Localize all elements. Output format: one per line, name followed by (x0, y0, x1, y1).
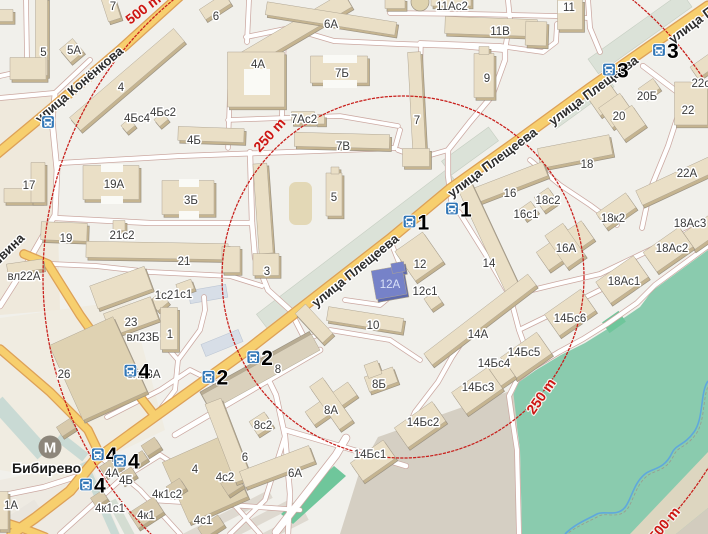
svg-text:6А: 6А (324, 19, 338, 31)
svg-text:3Б: 3Б (184, 195, 198, 207)
svg-text:4с1: 4с1 (194, 515, 213, 527)
svg-text:7В: 7В (336, 141, 350, 153)
svg-text:1с1: 1с1 (174, 289, 193, 301)
svg-text:18Ас2: 18Ас2 (656, 243, 689, 255)
svg-text:18к2: 18к2 (601, 213, 625, 225)
svg-text:4Бс4: 4Бс4 (124, 113, 151, 125)
svg-text:1А: 1А (4, 500, 18, 512)
svg-text:1: 1 (418, 212, 430, 235)
svg-text:14Бс2: 14Бс2 (407, 417, 439, 429)
svg-text:4с2: 4с2 (216, 472, 235, 484)
svg-text:вл22А: вл22А (7, 271, 40, 283)
svg-text:7Б: 7Б (335, 68, 349, 80)
svg-text:4к1: 4к1 (137, 510, 155, 522)
svg-text:18Ас1: 18Ас1 (608, 276, 641, 288)
svg-text:2: 2 (261, 347, 273, 370)
svg-text:8: 8 (275, 364, 281, 376)
svg-text:14А: 14А (468, 329, 489, 341)
svg-text:14Бс5: 14Бс5 (508, 347, 540, 359)
svg-text:4Б: 4Б (187, 135, 201, 147)
svg-text:4к1с1: 4к1с1 (95, 503, 125, 515)
svg-text:19А: 19А (104, 179, 125, 191)
svg-text:21: 21 (178, 256, 191, 268)
svg-text:3: 3 (264, 266, 270, 278)
svg-text:4: 4 (118, 82, 125, 94)
svg-text:22А: 22А (677, 168, 698, 180)
svg-text:4А: 4А (251, 59, 265, 71)
svg-text:14: 14 (483, 258, 496, 270)
svg-text:2: 2 (217, 367, 229, 390)
svg-text:вл23Б: вл23Б (127, 332, 160, 344)
svg-text:8с2: 8с2 (254, 420, 273, 432)
svg-text:12с1: 12с1 (413, 286, 438, 298)
svg-text:12: 12 (414, 259, 427, 271)
svg-text:1с2: 1с2 (155, 290, 174, 302)
svg-text:8Б: 8Б (372, 379, 386, 391)
svg-text:4А: 4А (105, 468, 119, 480)
svg-text:Бибирево: Бибирево (12, 460, 81, 476)
svg-text:16А: 16А (556, 243, 577, 255)
svg-text:14Бс6: 14Бс6 (554, 313, 586, 325)
svg-text:6: 6 (242, 452, 248, 464)
svg-text:5: 5 (331, 192, 337, 204)
svg-text:20: 20 (613, 111, 626, 123)
svg-text:1: 1 (167, 329, 173, 341)
svg-text:14Бс1: 14Бс1 (354, 449, 386, 461)
svg-text:4: 4 (192, 464, 199, 476)
svg-text:16: 16 (504, 188, 517, 200)
svg-text:23: 23 (125, 317, 138, 329)
svg-text:12А: 12А (380, 279, 401, 291)
svg-text:20Б: 20Б (637, 91, 657, 103)
svg-text:26: 26 (58, 369, 71, 381)
svg-text:5А: 5А (67, 45, 81, 57)
svg-text:22: 22 (682, 105, 695, 117)
svg-text:18с2: 18с2 (536, 195, 561, 207)
svg-text:4: 4 (94, 474, 106, 497)
svg-text:4: 4 (138, 361, 150, 384)
svg-text:11Ас2: 11Ас2 (436, 1, 468, 13)
svg-text:3: 3 (617, 60, 629, 83)
svg-text:11: 11 (563, 2, 575, 14)
svg-text:11В: 11В (490, 26, 510, 38)
svg-text:14Бс4: 14Бс4 (478, 358, 511, 370)
svg-text:6А: 6А (288, 468, 302, 480)
svg-text:17: 17 (23, 180, 36, 192)
svg-text:14Бс3: 14Бс3 (462, 382, 494, 394)
svg-text:3: 3 (667, 40, 679, 63)
svg-text:4к1с2: 4к1с2 (152, 489, 182, 501)
svg-text:16с1: 16с1 (514, 209, 539, 221)
svg-text:19: 19 (60, 233, 73, 245)
svg-text:7: 7 (414, 115, 420, 127)
svg-text:М: М (44, 440, 57, 457)
svg-text:5: 5 (40, 47, 46, 59)
svg-text:9: 9 (484, 73, 490, 85)
svg-text:10: 10 (367, 320, 380, 332)
svg-text:6: 6 (213, 11, 219, 23)
svg-text:21с2: 21с2 (110, 230, 135, 242)
svg-text:4: 4 (128, 451, 140, 474)
svg-text:18: 18 (581, 159, 594, 171)
svg-text:22с2: 22с2 (692, 78, 708, 90)
svg-text:7Ас2: 7Ас2 (291, 114, 317, 126)
svg-text:7: 7 (110, 1, 116, 13)
svg-text:8А: 8А (324, 405, 338, 417)
svg-text:18Ас3: 18Ас3 (674, 218, 707, 230)
svg-text:4Б: 4Б (119, 475, 133, 487)
svg-text:4Бс2: 4Бс2 (150, 107, 176, 119)
svg-text:1: 1 (460, 199, 472, 222)
